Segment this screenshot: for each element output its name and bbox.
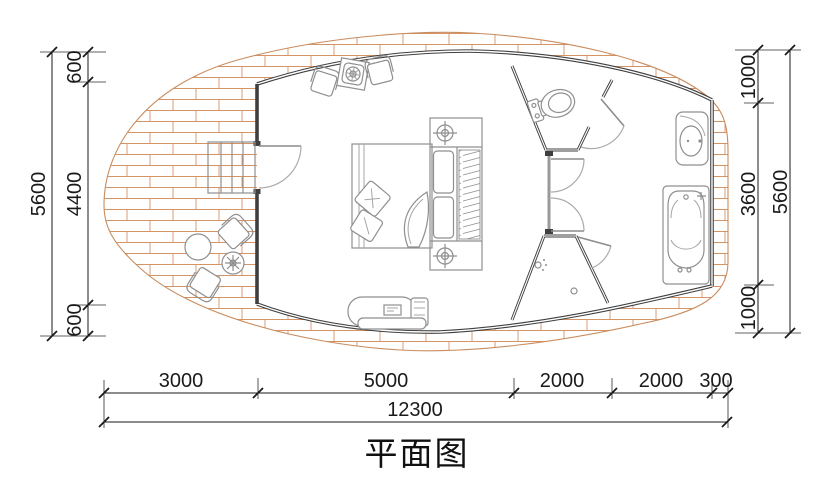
dim-label-bottom-total: 12300 [387,399,443,421]
dim-label-right-1000-bottom: 1000 [738,286,760,331]
deck-plant-table [222,252,244,274]
dim-label-bottom-300: 300 [699,370,732,392]
dim-label-bottom-2000-a: 2000 [540,370,585,392]
bathtub [663,186,709,284]
dim-label-bottom-2000-b: 2000 [639,370,684,392]
floor-plan-page: 600 4400 600 5600 1000 3600 1000 5600 30… [0,0,837,496]
dim-label-left-600-top: 600 [64,50,86,83]
dim-label-right-1000-top: 1000 [738,55,760,100]
stove-table [337,58,369,90]
dim-right: 1000 3600 1000 5600 [735,45,801,338]
dim-label-bottom-3000: 3000 [159,370,204,392]
dim-left: 600 4400 600 5600 [28,47,106,341]
wardrobe-hanging-rail [459,150,480,239]
dim-label-bottom-5000: 5000 [364,370,409,392]
bathroom-sink [676,112,708,165]
lounge-bench [348,297,428,329]
dim-label-left-4400: 4400 [64,172,86,217]
dim-label-left-total: 5600 [28,172,50,217]
dim-label-left-600-bottom: 600 [64,303,86,336]
deck-table [185,234,211,260]
floor-plan-svg: 600 4400 600 5600 1000 3600 1000 5600 30… [0,0,837,496]
bed [350,144,432,248]
dim-label-right-total: 5600 [770,170,792,215]
dim-label-right-3600: 3600 [738,172,760,217]
plan-title: 平面图 [365,435,470,472]
dim-bottom: 3000 5000 2000 2000 300 12300 [99,370,733,428]
